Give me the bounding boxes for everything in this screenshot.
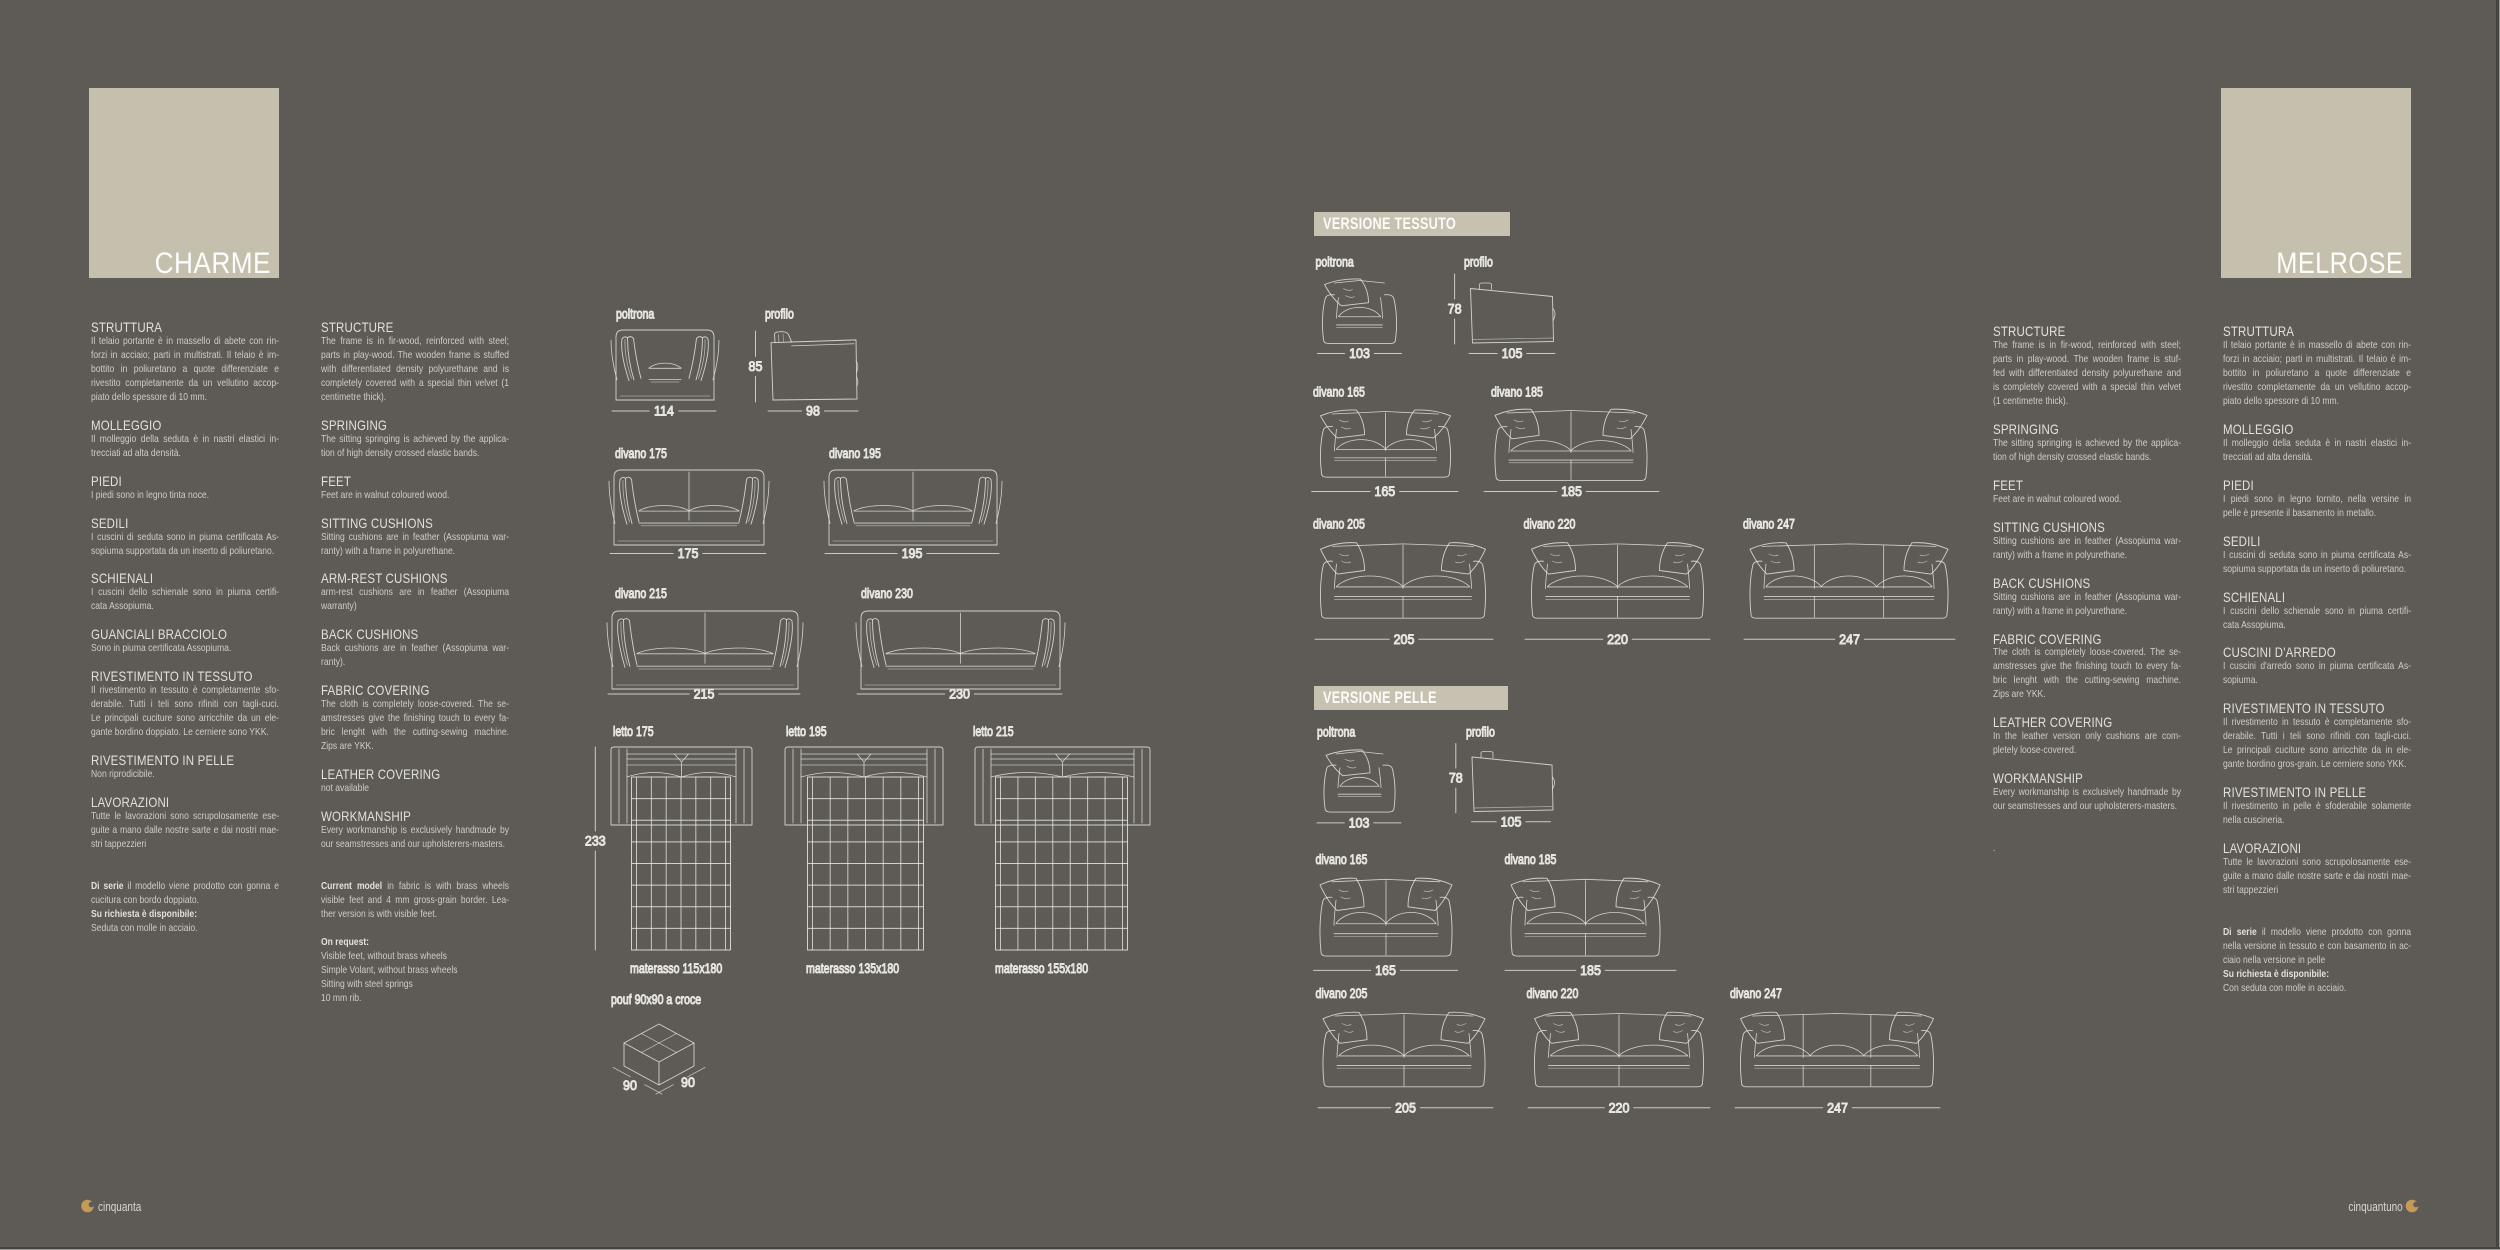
svg-text:103: 103 [1349,815,1370,831]
svg-text:90: 90 [681,1075,695,1091]
svg-text:divano 215: divano 215 [615,586,667,602]
svg-text:215: 215 [694,686,715,702]
svg-text:divano 195: divano 195 [829,446,881,462]
svg-text:letto 215: letto 215 [973,724,1014,740]
svg-text:poltrona: poltrona [616,306,655,322]
svg-text:105: 105 [1501,814,1522,830]
svg-text:letto 195: letto 195 [786,724,827,740]
svg-text:profilo: profilo [1466,724,1495,740]
svg-text:185: 185 [1561,484,1582,500]
svg-text:165: 165 [1375,963,1396,979]
svg-text:profilo: profilo [1464,254,1493,270]
svg-text:poltrona: poltrona [1316,254,1355,270]
svg-text:103: 103 [1349,346,1370,362]
svg-text:divano 165: divano 165 [1313,384,1365,400]
svg-text:220: 220 [1609,1100,1630,1116]
svg-text:78: 78 [1448,301,1462,317]
svg-text:materasso 115x180: materasso 115x180 [630,961,723,977]
svg-text:105: 105 [1502,346,1523,362]
svg-text:divano 220: divano 220 [1527,986,1579,1002]
svg-text:divano 205: divano 205 [1313,516,1365,532]
svg-text:185: 185 [1580,963,1601,979]
svg-text:220: 220 [1607,631,1628,647]
svg-text:letto 175: letto 175 [613,724,654,740]
svg-text:165: 165 [1374,484,1395,500]
svg-text:247: 247 [1827,1100,1848,1116]
svg-text:pouf 90x90 a croce: pouf 90x90 a croce [611,992,701,1008]
svg-text:230: 230 [949,686,970,702]
svg-text:85: 85 [749,359,763,375]
svg-text:materasso 135x180: materasso 135x180 [806,961,899,977]
svg-text:divano 165: divano 165 [1316,852,1368,868]
svg-text:divano 230: divano 230 [861,586,913,602]
svg-text:divano 175: divano 175 [615,446,667,462]
svg-text:114: 114 [654,403,674,419]
svg-text:195: 195 [902,546,923,562]
svg-text:205: 205 [1395,1100,1416,1116]
svg-text:205: 205 [1394,631,1415,647]
svg-text:divano 205: divano 205 [1316,986,1368,1002]
svg-text:divano 185: divano 185 [1505,852,1557,868]
svg-text:175: 175 [678,546,699,562]
svg-text:78: 78 [1449,770,1463,786]
svg-text:poltrona: poltrona [1317,724,1356,740]
svg-text:materasso 155x180: materasso 155x180 [995,961,1088,977]
svg-text:divano 220: divano 220 [1524,516,1576,532]
svg-text:divano 247: divano 247 [1743,516,1795,532]
svg-text:247: 247 [1839,631,1860,647]
svg-text:98: 98 [806,403,820,419]
svg-text:90: 90 [623,1078,637,1094]
svg-text:profilo: profilo [765,306,794,322]
svg-text:divano 185: divano 185 [1491,384,1543,400]
svg-text:233: 233 [585,833,606,849]
svg-text:divano 247: divano 247 [1730,986,1782,1002]
